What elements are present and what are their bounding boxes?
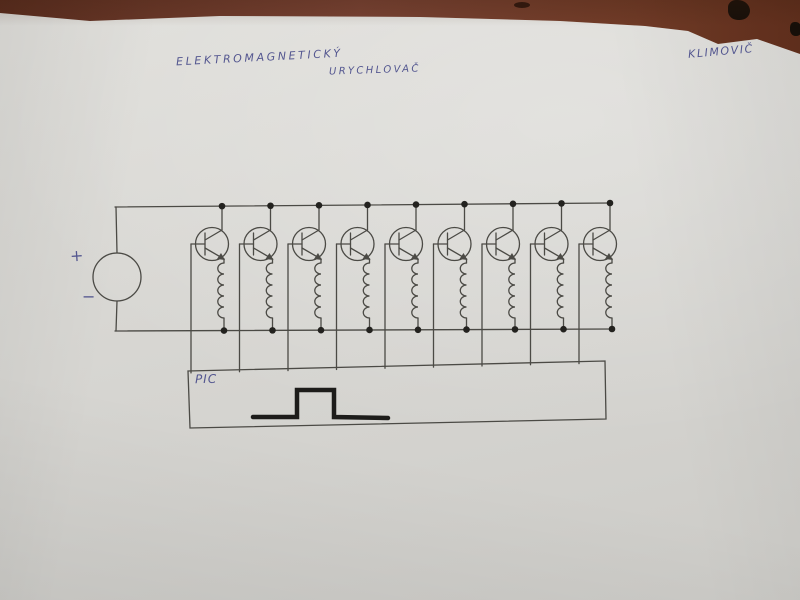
pulse-waveform (253, 390, 388, 418)
coil-symbol (266, 263, 272, 318)
transistor-collector-stroke (448, 230, 465, 240)
coil-symbol (363, 263, 369, 318)
transistor-collector-stroke (496, 230, 513, 240)
coil-symbol (460, 263, 466, 318)
junction-dot (366, 327, 373, 334)
junction-dot (221, 327, 228, 334)
driver-stage (482, 200, 520, 365)
junction-dot (415, 326, 422, 333)
voltage-source-circle (93, 253, 141, 301)
driver-stage (240, 202, 278, 371)
transistor-collector-stroke (254, 230, 271, 240)
driver-stage (579, 200, 617, 364)
driver-stage (337, 202, 375, 370)
junction-dot (609, 326, 616, 333)
junction-dot (510, 200, 517, 207)
source-minus-label: − (82, 287, 95, 306)
driver-stage (191, 203, 229, 373)
junction-dot (558, 200, 565, 207)
junction-dot (219, 203, 226, 210)
source-top-wire (116, 207, 117, 253)
source-plus-label: + (69, 246, 84, 266)
junction-dot (463, 326, 470, 333)
coil-symbol (218, 263, 224, 318)
pic-box-outline (188, 361, 606, 428)
transistor-collector-stroke (593, 230, 610, 240)
voltage-source-symbol (93, 207, 141, 331)
transistor-collector-stroke (399, 230, 416, 240)
coil-symbol (315, 263, 321, 318)
circuit-generated (93, 200, 617, 428)
coil-symbol (412, 263, 418, 318)
junction-dot (461, 201, 468, 208)
coil-symbol (509, 263, 515, 318)
driver-stage (434, 201, 472, 367)
junction-dot (269, 327, 276, 334)
junction-dot (318, 327, 325, 334)
junction-dot (607, 200, 614, 207)
driver-stage (531, 200, 569, 365)
source-bottom-wire (116, 301, 117, 331)
driver-stage (288, 202, 326, 371)
coil-symbol (606, 263, 612, 318)
junction-dot (316, 202, 323, 209)
transistor-collector-stroke (351, 230, 368, 240)
transistor-collector-stroke (302, 230, 319, 240)
junction-dot (512, 326, 519, 333)
pic-controller-label: PIC (195, 372, 217, 386)
photo-scene: ELEKTROMAGNETICKÝ URYCHLOVAČ KLIMOVIČ + … (0, 0, 800, 600)
top-rail (115, 203, 610, 207)
schematic-svg (0, 0, 800, 600)
driver-stage (385, 201, 423, 368)
transistor-collector-stroke (205, 230, 222, 240)
junction-dot (364, 202, 371, 209)
transistor-collector-stroke (545, 230, 562, 240)
junction-dot (267, 202, 274, 209)
junction-dot (413, 201, 420, 208)
coil-symbol (557, 263, 563, 318)
pic-controller-box (188, 361, 606, 428)
bottom-rail (115, 329, 614, 331)
junction-dot (560, 326, 567, 333)
